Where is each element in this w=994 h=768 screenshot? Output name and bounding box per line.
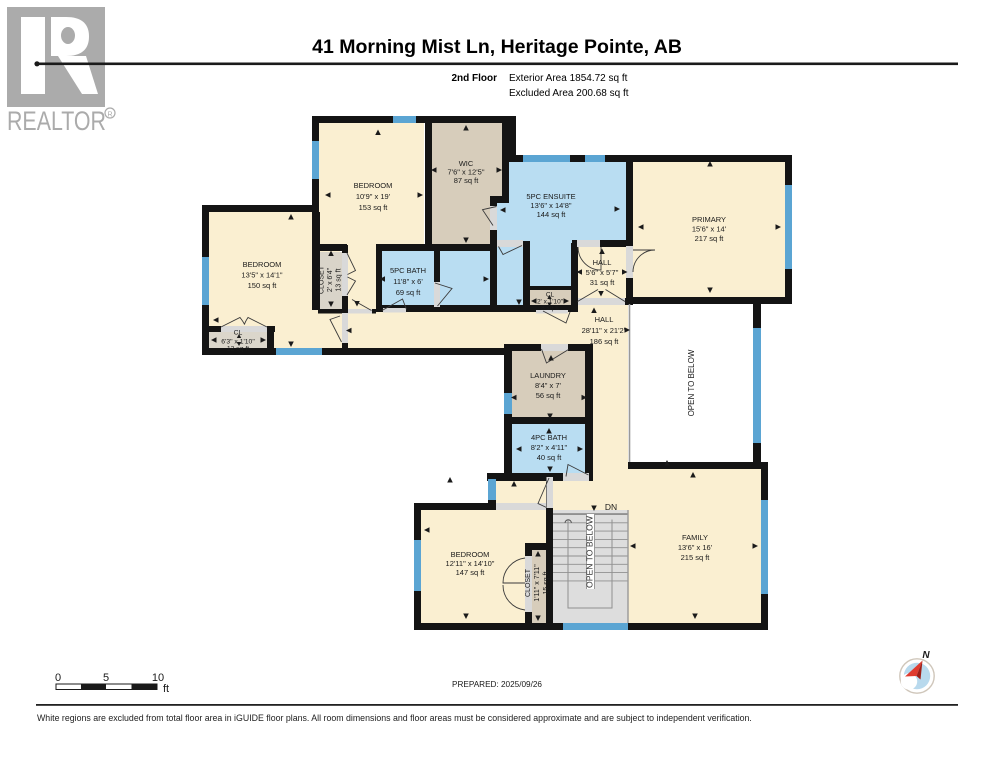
svg-text:PRIMARY: PRIMARY [692,215,726,224]
svg-text:12 sq ft: 12 sq ft [227,346,249,353]
svg-text:8 sq ft: 8 sq ft [541,305,559,312]
svg-text:LAUNDRY: LAUNDRY [530,371,566,380]
svg-text:13 sq ft: 13 sq ft [336,268,343,291]
svg-text:N: N [922,650,930,661]
svg-text:10'9" x 19': 10'9" x 19' [356,192,391,201]
svg-text:87 sq ft: 87 sq ft [454,176,480,185]
svg-text:31 sq ft: 31 sq ft [590,278,616,287]
svg-text:11'8" x 6': 11'8" x 6' [393,277,423,286]
svg-text:40 sq ft: 40 sq ft [537,453,563,462]
svg-text:Excluded Area 200.68 sq ft: Excluded Area 200.68 sq ft [509,88,629,99]
svg-text:2' x 6'4": 2' x 6'4" [327,267,334,292]
svg-text:5PC ENSUITE: 5PC ENSUITE [526,192,575,201]
svg-text:186 sq ft: 186 sq ft [590,337,620,346]
svg-text:28'11" x 21'2": 28'11" x 21'2" [582,326,627,335]
svg-text:BEDROOM: BEDROOM [451,550,490,559]
svg-text:153 sq ft: 153 sq ft [359,203,389,212]
svg-text:13'6" x 16': 13'6" x 16' [678,543,713,552]
svg-text:HALL: HALL [595,315,614,324]
svg-text:CLOSET: CLOSET [319,265,326,294]
svg-text:0: 0 [55,672,61,684]
svg-text:OPEN TO BELOW: OPEN TO BELOW [687,349,696,416]
svg-text:1'11" x 7'11": 1'11" x 7'11" [534,564,541,602]
svg-text:56 sq ft: 56 sq ft [536,391,562,400]
svg-text:4PC BATH: 4PC BATH [531,433,567,442]
svg-text:147 sq ft: 147 sq ft [456,568,486,577]
svg-text:15'6" x 14': 15'6" x 14' [692,225,727,234]
svg-text:R: R [107,112,112,119]
svg-text:CL: CL [234,330,243,337]
svg-text:OPEN TO BELOW: OPEN TO BELOW [586,515,595,588]
svg-text:DN: DN [605,502,617,512]
svg-text:69 sq ft: 69 sq ft [396,288,422,297]
svg-text:41 Morning Mist Ln, Heritage P: 41 Morning Mist Ln, Heritage Pointe, AB [312,36,682,58]
svg-text:150 sq ft: 150 sq ft [248,281,278,290]
svg-text:HALL: HALL [593,258,612,267]
svg-text:12'11" x 14'10": 12'11" x 14'10" [446,559,495,568]
svg-text:215 sq ft: 215 sq ft [681,553,711,562]
svg-text:15 sq ft: 15 sq ft [543,571,550,594]
svg-text:8'4" x 7': 8'4" x 7' [535,381,562,390]
svg-text:5: 5 [103,672,109,684]
svg-text:13'5" x 14'1": 13'5" x 14'1" [241,271,282,280]
svg-text:144 sq ft: 144 sq ft [537,210,567,219]
svg-text:217 sq ft: 217 sq ft [695,234,725,243]
svg-text:BEDROOM: BEDROOM [243,260,282,269]
svg-text:FAMILY: FAMILY [682,533,708,542]
svg-text:PREPARED: 2025/09/26: PREPARED: 2025/09/26 [452,680,542,689]
svg-text:BEDROOM: BEDROOM [354,181,393,190]
svg-text:2nd Floor: 2nd Floor [451,73,497,84]
svg-text:8'2" x 4'11": 8'2" x 4'11" [531,443,568,452]
svg-text:5PC BATH: 5PC BATH [390,266,426,275]
svg-text:5'6" x 5'7": 5'6" x 5'7" [586,268,619,277]
svg-text:Exterior Area 1854.72 sq ft: Exterior Area 1854.72 sq ft [509,73,628,84]
svg-text:ft: ft [163,683,169,695]
svg-text:CLOSET: CLOSET [525,568,532,597]
svg-text:REALTOR: REALTOR [7,106,106,136]
svg-text:White regions are excluded fro: White regions are excluded from total fl… [37,713,752,723]
svg-text:13'6" x 14'8": 13'6" x 14'8" [530,201,571,210]
